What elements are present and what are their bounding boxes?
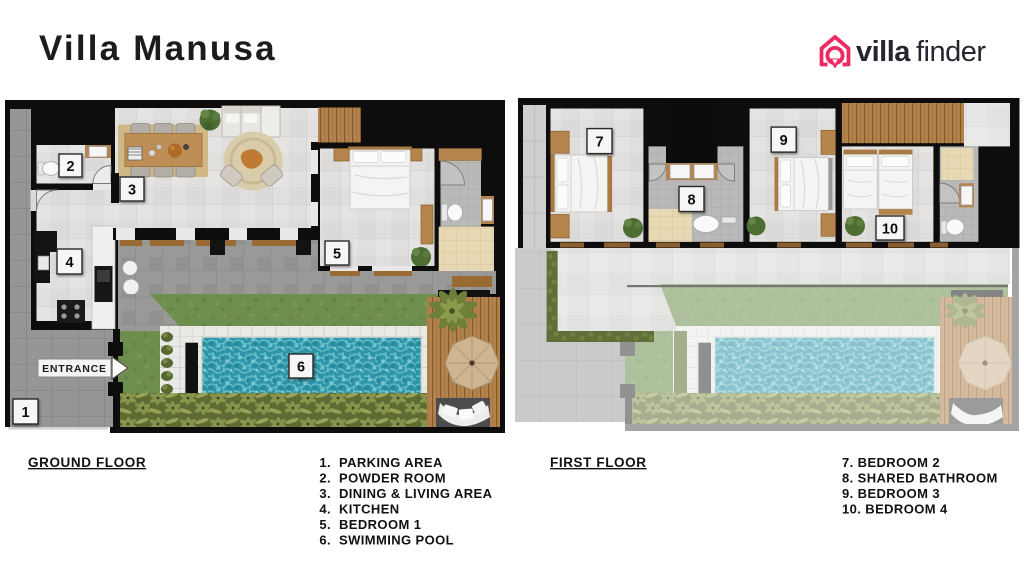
svg-text:4: 4 [65,255,73,271]
svg-text:PARKING AREA: PARKING AREA [339,455,443,470]
svg-text:10. BEDROOM 4: 10. BEDROOM 4 [842,502,948,517]
svg-text:finder: finder [916,36,986,68]
svg-text:3: 3 [128,183,136,199]
svg-text:5: 5 [333,247,341,263]
svg-text:8: 8 [687,193,695,209]
svg-text:5.: 5. [319,517,331,532]
svg-text:1.: 1. [319,455,331,470]
svg-text:FIRST FLOOR: FIRST FLOOR [550,455,647,470]
svg-text:8. SHARED BATHROOM: 8. SHARED BATHROOM [842,471,998,486]
svg-text:SWIMMING POOL: SWIMMING POOL [339,533,454,548]
svg-text:3.: 3. [319,486,331,501]
svg-text:BEDROOM 1: BEDROOM 1 [339,517,421,532]
svg-text:1: 1 [21,405,29,421]
svg-text:DINING & LIVING AREA: DINING & LIVING AREA [339,486,493,501]
svg-text:6: 6 [297,360,305,376]
svg-text:POWDER ROOM: POWDER ROOM [339,471,446,486]
svg-text:10: 10 [882,222,898,238]
svg-text:ENTRANCE: ENTRANCE [42,363,107,375]
svg-text:2: 2 [66,159,74,175]
svg-text:6.: 6. [319,533,331,548]
svg-text:7. BEDROOM 2: 7. BEDROOM 2 [842,455,940,470]
svg-text:KITCHEN: KITCHEN [339,502,400,517]
svg-text:villa: villa [856,36,911,68]
svg-text:4.: 4. [319,502,331,517]
svg-text:2.: 2. [319,471,331,486]
svg-text:9: 9 [780,133,788,149]
svg-text:7: 7 [595,135,603,151]
svg-text:GROUND FLOOR: GROUND FLOOR [28,455,146,470]
svg-text:Villa Manusa: Villa Manusa [39,29,277,68]
svg-text:9. BEDROOM 3: 9. BEDROOM 3 [842,486,940,501]
